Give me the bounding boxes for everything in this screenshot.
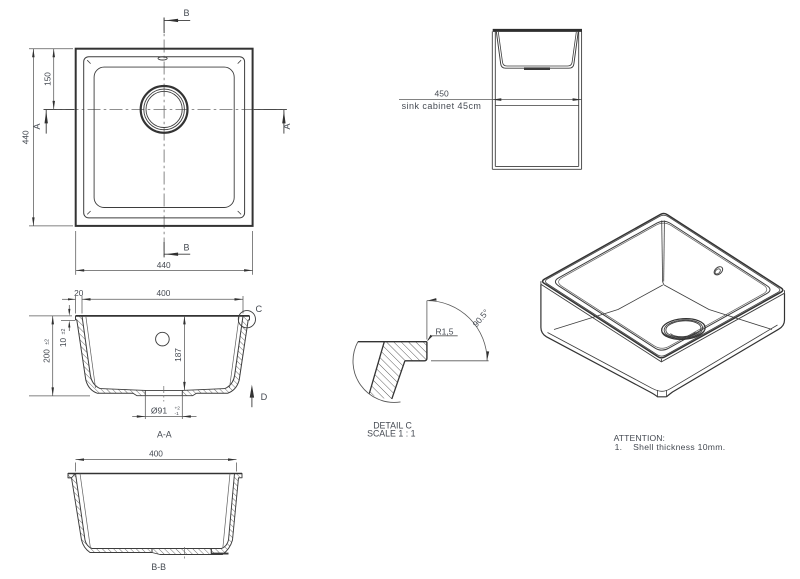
svg-text:20: 20 <box>74 288 84 298</box>
svg-text:450: 450 <box>435 89 449 99</box>
svg-text:440: 440 <box>157 260 171 270</box>
svg-text:440: 440 <box>20 130 30 144</box>
svg-text:B: B <box>183 243 189 253</box>
svg-text:C: C <box>255 304 262 314</box>
svg-text:+2: +2 <box>175 406 181 412</box>
svg-text:R1,5: R1,5 <box>436 326 454 336</box>
svg-text:sink cabinet 45cm: sink cabinet 45cm <box>402 101 482 111</box>
svg-text:200: 200 <box>41 349 51 363</box>
svg-text:-1: -1 <box>175 411 180 417</box>
svg-text:D: D <box>261 392 268 402</box>
svg-text:400: 400 <box>149 448 163 458</box>
svg-text:Ø91: Ø91 <box>151 405 167 415</box>
svg-text:90.5°: 90.5° <box>470 307 490 329</box>
svg-text:SCALE 1 : 1: SCALE 1 : 1 <box>367 429 416 439</box>
svg-text:1. Shell thickness 10mm.: 1. Shell thickness 10mm. <box>615 442 726 452</box>
svg-text:±2: ±2 <box>61 329 67 335</box>
svg-text:B-B: B-B <box>151 562 166 572</box>
svg-text:B: B <box>183 8 189 18</box>
svg-text:A-A: A-A <box>157 430 172 440</box>
svg-text:187: 187 <box>173 348 183 362</box>
svg-text:150: 150 <box>42 72 52 86</box>
svg-text:A: A <box>282 123 292 129</box>
svg-text:10: 10 <box>58 338 68 348</box>
svg-text:400: 400 <box>156 288 170 298</box>
svg-text:±2: ±2 <box>45 339 51 345</box>
